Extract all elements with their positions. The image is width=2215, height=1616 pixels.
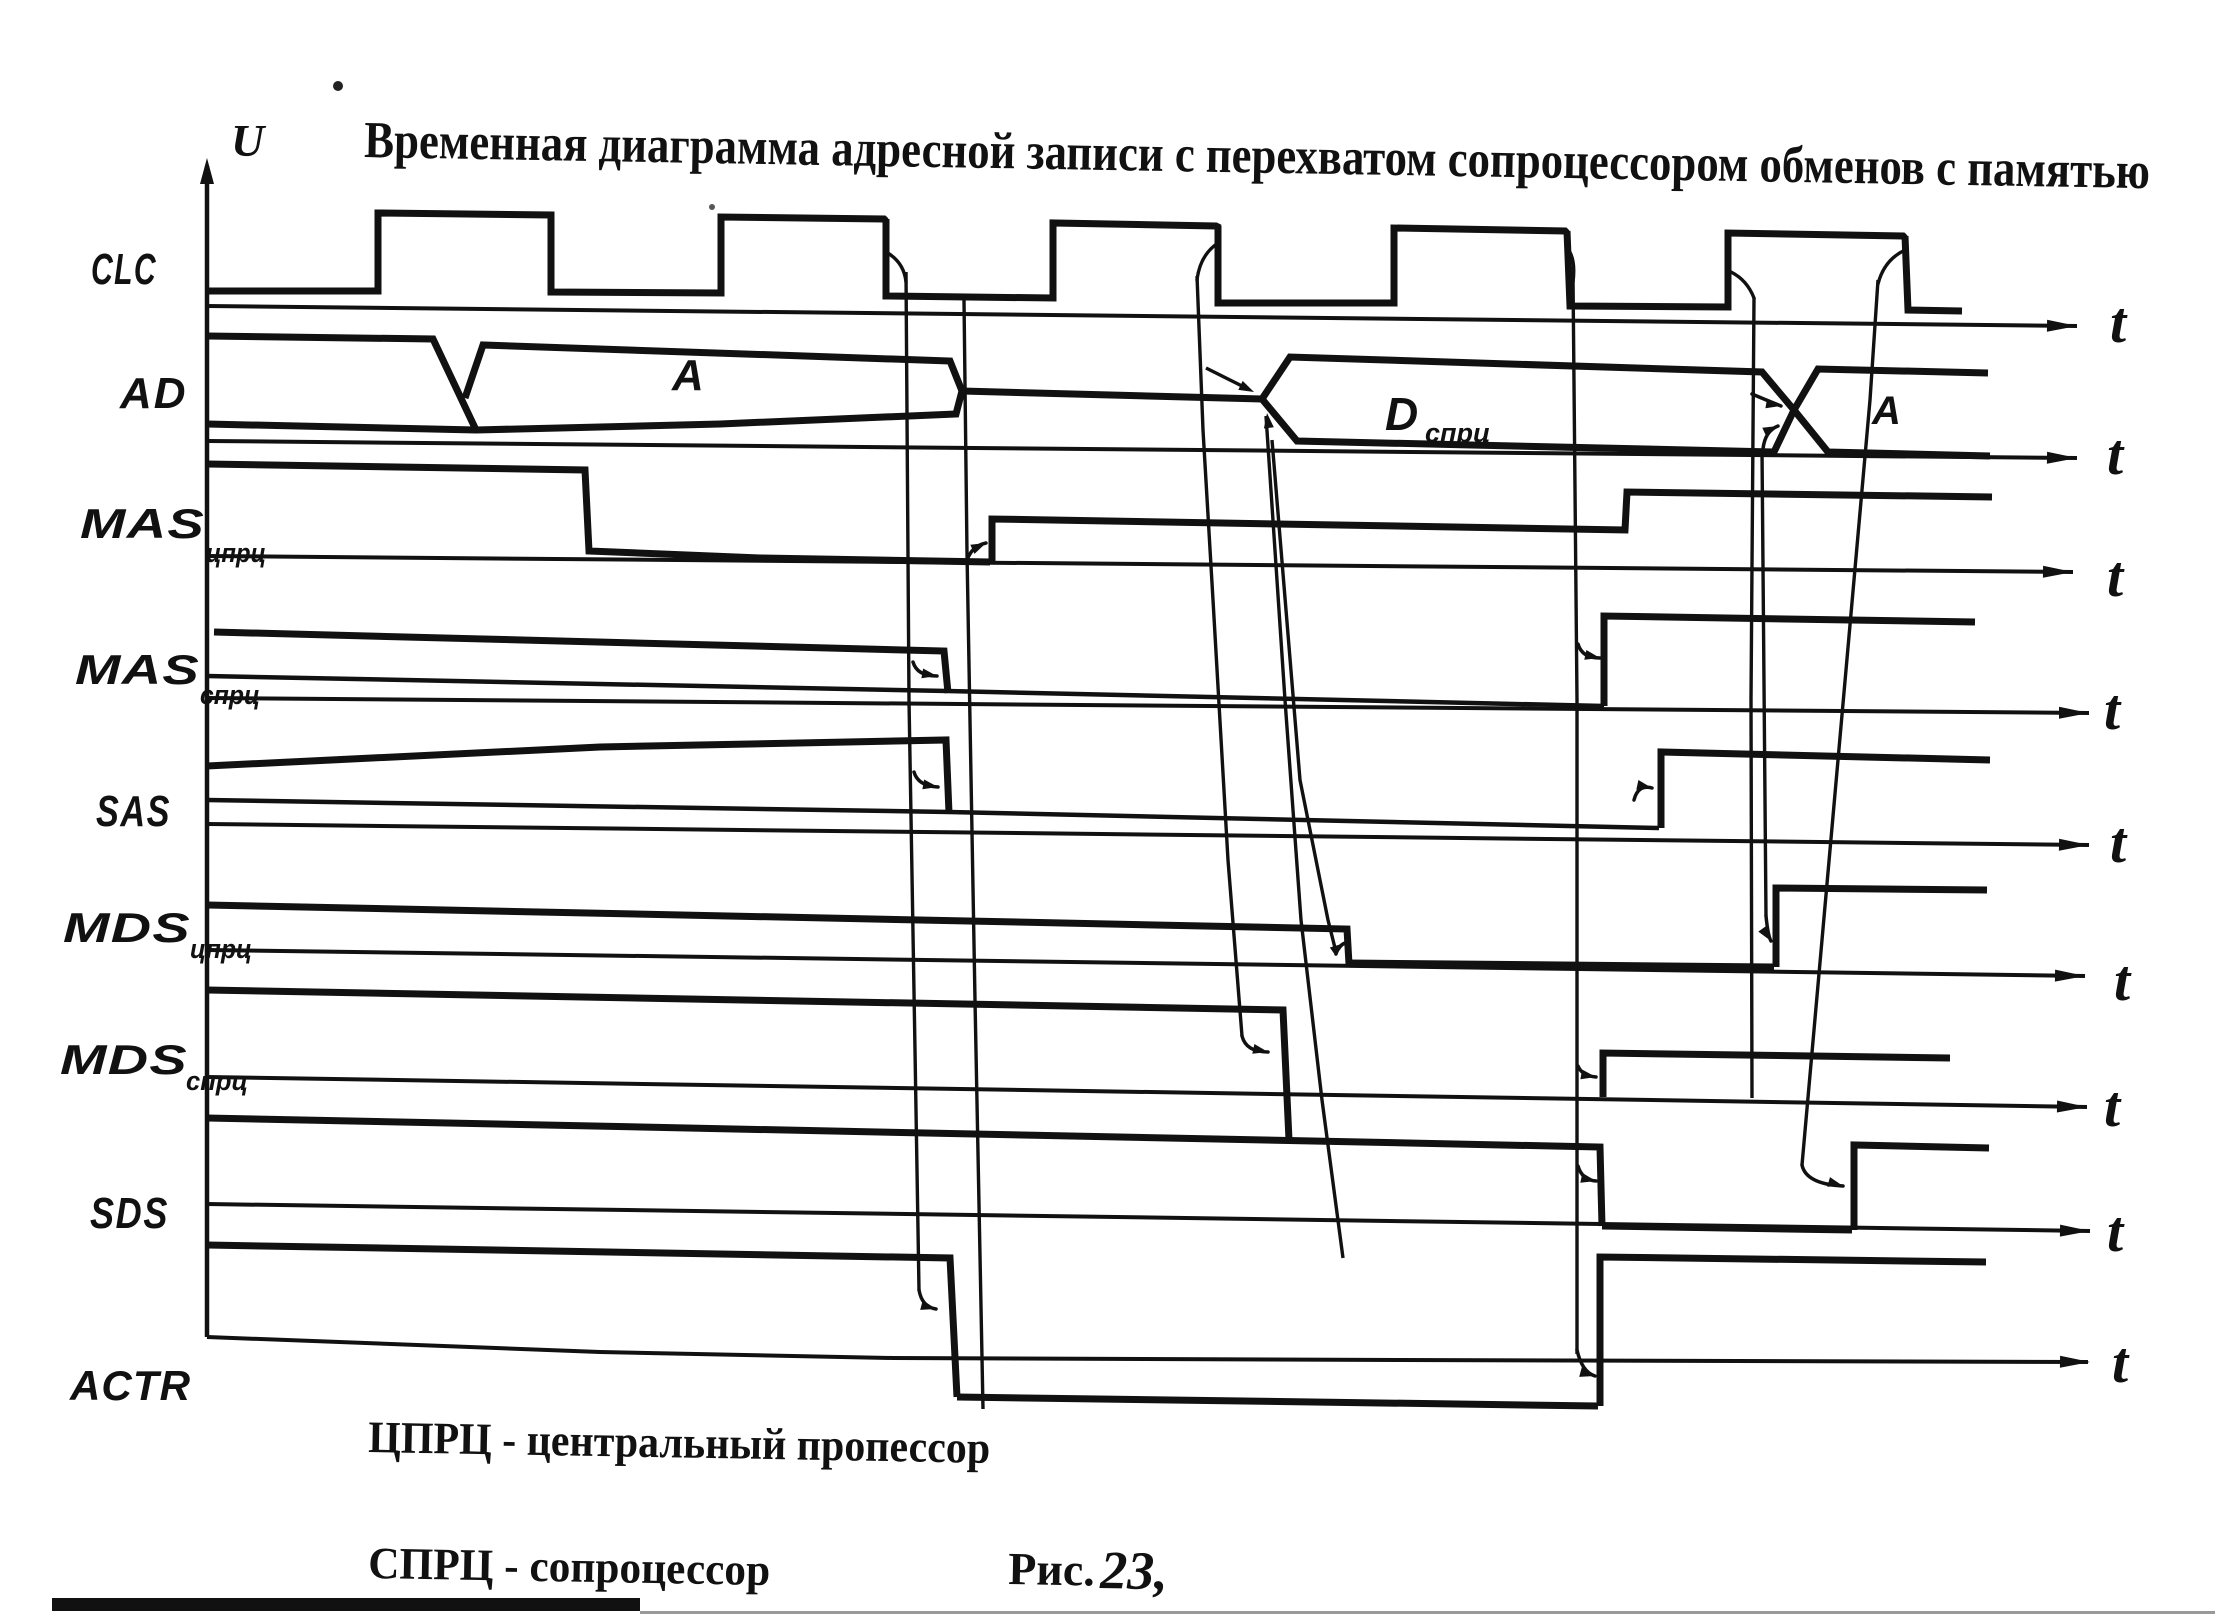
svg-text:MAS: MAS xyxy=(80,500,205,547)
svg-text:t: t xyxy=(2110,810,2128,875)
svg-text:t: t xyxy=(2104,677,2122,742)
svg-text:Рис.: Рис. xyxy=(1008,1543,1095,1596)
svg-text:ЦПРЦ - центральный пропессор: ЦПРЦ - центральный пропессор xyxy=(368,1412,991,1473)
svg-text:A: A xyxy=(1871,389,1901,433)
svg-text:D: D xyxy=(1385,388,1418,440)
svg-text:спрц: спрц xyxy=(200,680,260,710)
svg-text:t: t xyxy=(2107,544,2125,609)
svg-text:цпрц: цпрц xyxy=(206,538,266,568)
svg-text:A: A xyxy=(671,351,704,400)
svg-text:СПРЦ - сопроцессор: СПРЦ - сопроцессор xyxy=(368,1538,771,1595)
svg-text:t: t xyxy=(2107,422,2125,487)
svg-text:спрц: спрц xyxy=(1425,418,1490,448)
svg-text:MDS: MDS xyxy=(63,904,191,951)
svg-text:SAS: SAS xyxy=(96,787,171,836)
svg-text:t: t xyxy=(2104,1074,2122,1139)
svg-text:Временная диаграмма адресной з: Временная диаграмма адресной записи с пе… xyxy=(364,112,2151,200)
svg-text:цпрц: цпрц xyxy=(190,934,252,964)
svg-text:t: t xyxy=(2110,290,2128,355)
svg-text:CLC: CLC xyxy=(91,245,157,294)
svg-text:SDS: SDS xyxy=(90,1189,169,1238)
svg-text:t: t xyxy=(2114,948,2132,1013)
svg-text:t: t xyxy=(2107,1199,2125,1264)
svg-text:спрц: спрц xyxy=(186,1066,248,1096)
svg-text:ACTR: ACTR xyxy=(69,1362,191,1409)
svg-text:t: t xyxy=(2112,1330,2130,1395)
svg-text:MAS: MAS xyxy=(75,646,200,693)
svg-text:23,: 23, xyxy=(1099,1540,1169,1601)
svg-text:AD: AD xyxy=(119,369,188,418)
svg-text:U: U xyxy=(231,115,267,166)
svg-text:MDS: MDS xyxy=(60,1036,188,1083)
